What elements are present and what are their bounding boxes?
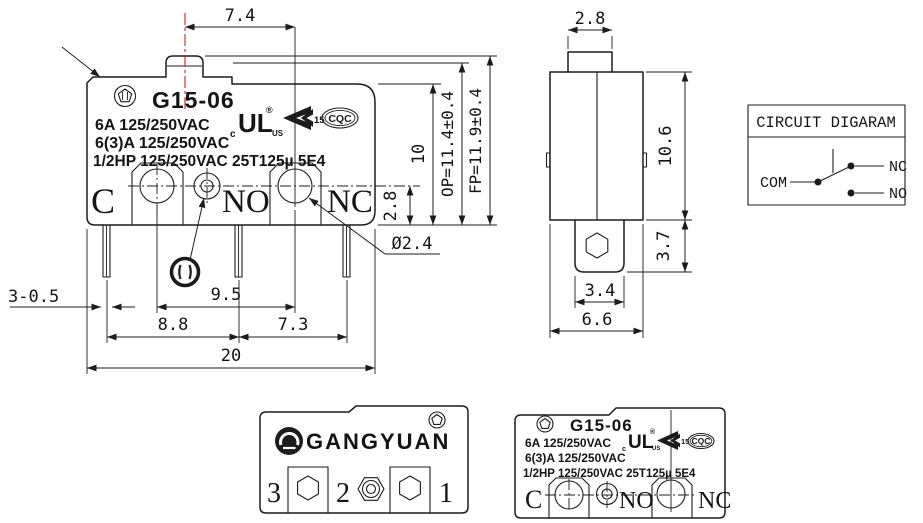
marking-line-2: 6(3)A 125/250VAC xyxy=(95,135,230,152)
marking-line-3: 1/2HP 125/250VAC 25T125µ 5E4 xyxy=(93,153,326,170)
cqc-text: CQC xyxy=(328,113,352,125)
dim-overall-width: 20 xyxy=(221,346,241,366)
terminal-label-com: C xyxy=(91,181,115,221)
ul-us-text: US xyxy=(272,129,284,138)
circuit-nc-label: NC xyxy=(889,159,907,176)
dim-operating-position: OP=11.4±0.4 xyxy=(438,91,457,197)
pentagon-cert-icon xyxy=(115,86,136,107)
dim-mount-hole-pitch: 9.5 xyxy=(211,285,242,305)
dim-terminal-length: 3.7 xyxy=(654,231,674,262)
model-number: G15-06 xyxy=(152,87,235,113)
terminal-label-no-small: NO xyxy=(619,488,654,514)
circuit-no-contact xyxy=(848,190,855,197)
front-pins xyxy=(103,225,350,277)
dim-hole-diameter: Ø2.4 xyxy=(392,234,433,254)
cqc-text-small: CQC xyxy=(692,436,711,446)
drawing-canvas: G15-06 6A 125/250VAC 6(3)A 125/250VAC 1/… xyxy=(0,0,923,523)
terminal-label-nc-small: NC xyxy=(698,488,731,514)
pentagon-cert-icon-small xyxy=(537,416,553,432)
pin-label-3: 3 xyxy=(267,478,281,509)
ul-us-text-small: US xyxy=(652,446,660,452)
back-rivet-hex xyxy=(358,478,384,501)
marking-small-line-2: 6(3)A 125/250VAC xyxy=(525,451,626,465)
dim-side-body-height: 10.6 xyxy=(656,126,676,167)
pin-label-1: 1 xyxy=(439,478,453,509)
k-mark-number: 15 xyxy=(314,115,325,126)
front-centerlines xyxy=(128,13,420,214)
cqc-mark-icon-small: CQC xyxy=(688,434,714,449)
ul-c-text-small: c xyxy=(622,446,626,453)
side-terminal-hex-hole xyxy=(586,233,608,258)
model-number-small: G15-06 xyxy=(570,416,633,435)
terminal-label-nc: NC xyxy=(327,184,373,220)
side-dimensions: 2.8 10.6 3.7 3.4 6.6 xyxy=(550,9,692,338)
marking-view: G15-06 6A 125/250VAC 6(3)A 125/250VAC 1/… xyxy=(515,408,731,518)
side-outline xyxy=(547,52,647,272)
technical-drawing-page: G15-06 6A 125/250VAC 6(3)A 125/250VAC 1/… xyxy=(0,0,923,523)
marking-line-1: 6A 125/250VAC xyxy=(95,117,210,134)
circuit-title: CIRCUIT DIGARAM xyxy=(756,114,896,132)
dim-plunger-width: 2.8 xyxy=(575,9,606,29)
marking-small-line-1: 6A 125/250VAC xyxy=(525,436,611,450)
terminal-label-no: NO xyxy=(222,184,270,220)
cqc-mark-icon: CQC xyxy=(322,108,358,128)
dim-terminal-width: 3.4 xyxy=(585,281,616,301)
circuit-diagram: CIRCUIT DIGARAM COM NC NO xyxy=(748,105,907,205)
housing-leader-arrow xyxy=(62,47,100,77)
pin-label-2: 2 xyxy=(336,478,350,509)
circuit-nc-contact xyxy=(848,163,855,170)
ul-registered-icon-small: ® xyxy=(650,428,656,436)
ul-mark: UL c US ® xyxy=(230,105,284,140)
k-cert-mark-icon-small: 15 xyxy=(657,431,689,450)
back-view: GANGYUAN 3 2 1 xyxy=(260,406,468,513)
circuit-com-label: COM xyxy=(760,175,787,192)
ul-registered-icon: ® xyxy=(266,105,273,115)
detail-balloon xyxy=(172,198,205,286)
dim-body-height: 10 xyxy=(409,144,429,164)
circuit-no-label: NO xyxy=(889,186,907,203)
dim-plunger-offset: 7.4 xyxy=(225,6,256,26)
side-view: 2.8 10.6 3.7 3.4 6.6 xyxy=(547,9,693,338)
dim-body-depth: 6.6 xyxy=(582,310,613,330)
dim-free-position: FP=11.9±0.4 xyxy=(466,88,485,194)
dim-pin-pitch-right: 7.3 xyxy=(278,315,309,335)
ul-mark-small: UL c US ® xyxy=(622,428,660,453)
dim-pin-pitch-left: 8.8 xyxy=(158,315,189,335)
pentagon-cert-icon-back xyxy=(429,412,445,428)
front-markings: G15-06 6A 125/250VAC 6(3)A 125/250VAC 1/… xyxy=(91,86,373,222)
terminal-label-com-small: C xyxy=(525,485,542,514)
k-cert-mark-icon: 15 xyxy=(283,106,325,130)
brand-logo-icon xyxy=(275,427,303,455)
brand-name: GANGYUAN xyxy=(306,429,450,454)
ul-c-text: c xyxy=(230,129,236,140)
back-outline xyxy=(260,406,468,513)
front-view: G15-06 6A 125/250VAC 6(3)A 125/250VAC 1/… xyxy=(8,6,497,374)
dim-base-strip: 2.8 xyxy=(381,191,401,222)
back-terminals xyxy=(288,467,430,513)
dim-terminal-spec: 3-0.5 xyxy=(8,287,59,307)
